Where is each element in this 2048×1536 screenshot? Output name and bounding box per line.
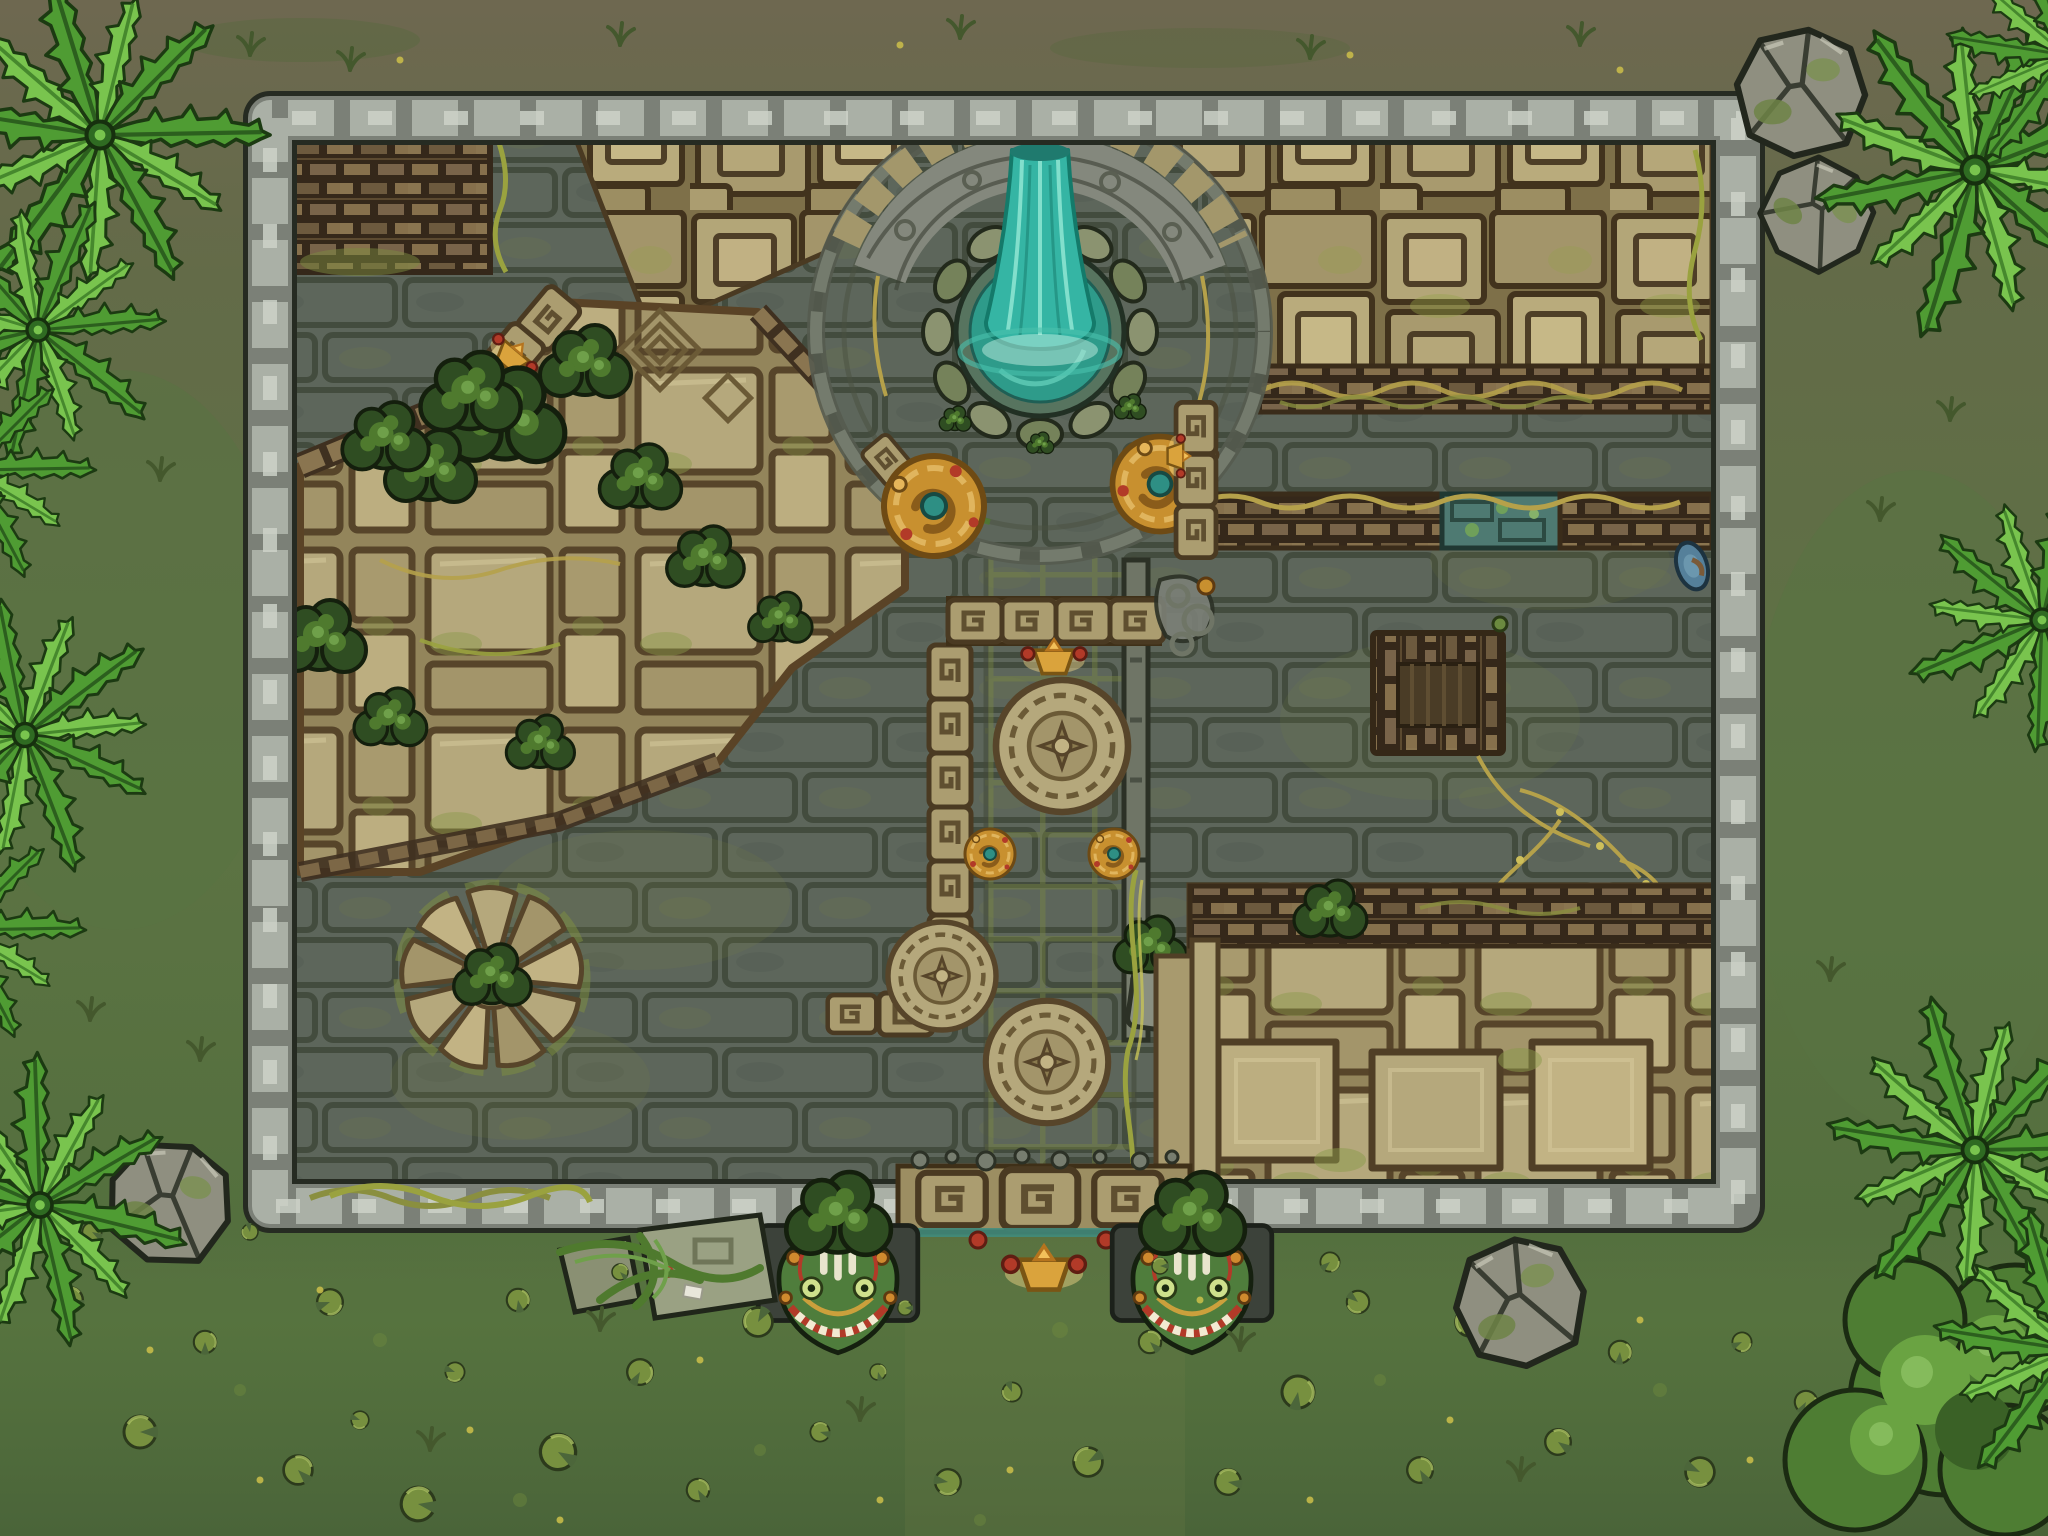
south-terrace [1156,880,1738,1196]
walkway-medallion [986,1001,1108,1123]
retaining-wall-east [1256,366,1712,412]
walkway-medallion [996,680,1128,812]
battle-map [0,0,2048,1536]
torch-statue [1089,829,1139,879]
torch-statue [965,829,1015,879]
map-canvas [0,0,2048,1536]
east-glyph-pillar [1168,402,1216,557]
boulder [1737,30,1865,156]
temple-courtyard [270,102,1738,1206]
square-well [1373,617,1507,753]
walkway-medallion [888,922,996,1030]
